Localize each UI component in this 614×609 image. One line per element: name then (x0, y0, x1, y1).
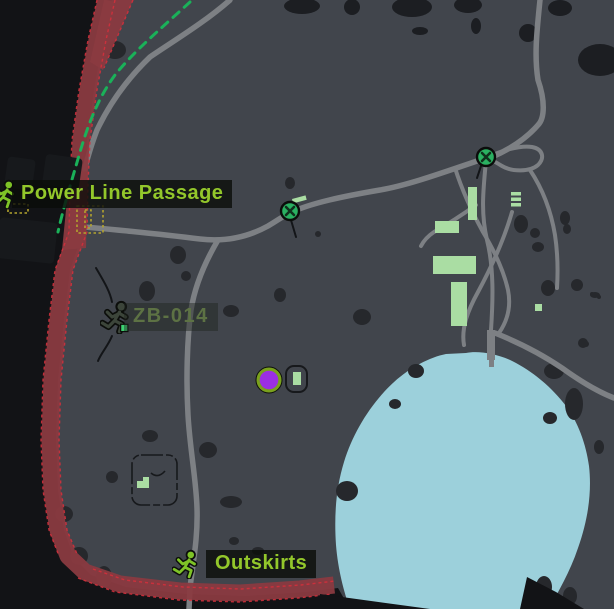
exfil-outskirts[interactable]: Outskirts (172, 549, 316, 579)
map-canvas (0, 0, 614, 609)
exfil-zb014-disabled[interactable]: ZB-014 (100, 300, 218, 334)
exfil-power-line-passage[interactable]: Power Line Passage (0, 179, 232, 209)
exfil-label: Power Line Passage (12, 180, 232, 208)
game-map-screen: Power Line Passage ZB-014 Outskirts (0, 0, 614, 609)
exfil-label: Outskirts (206, 550, 316, 578)
runner-icon (172, 549, 202, 579)
position-marker[interactable] (256, 367, 282, 393)
exfil-label: ZB-014 (124, 303, 218, 331)
